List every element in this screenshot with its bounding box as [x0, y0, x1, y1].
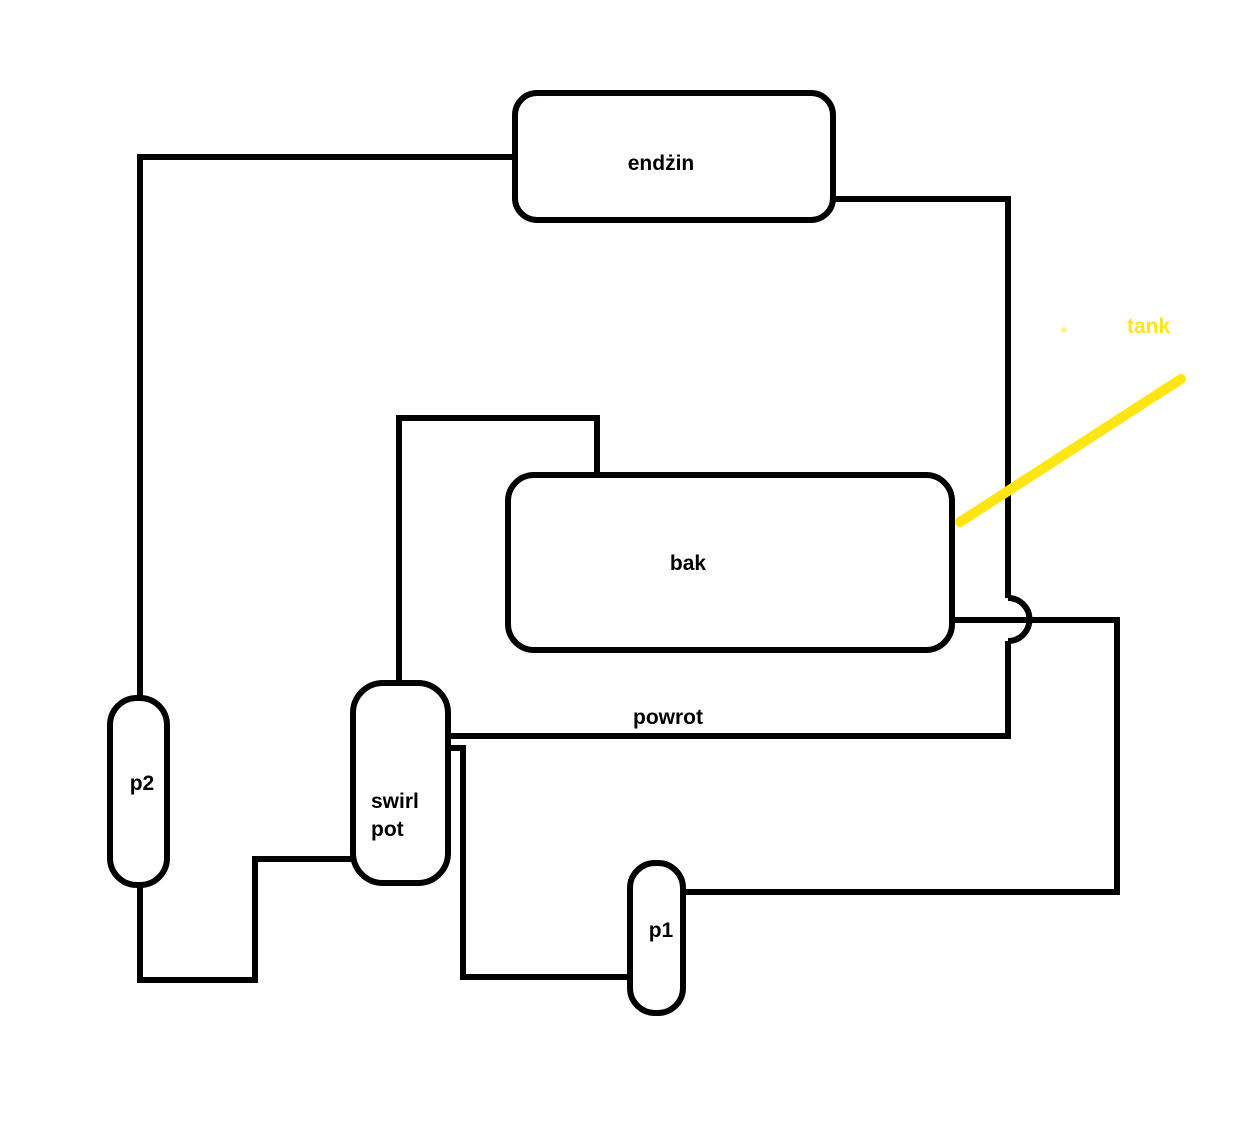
connector-return-to-swirlpot — [448, 641, 1008, 736]
stray-paint-dot — [1061, 327, 1067, 333]
tank-callout-label: tank — [1127, 315, 1171, 338]
connector-pump1-to-swirlpot — [448, 748, 632, 977]
paint-canvas: tank endżin bak swirl pot p2 p1 powrot — [0, 0, 1246, 1133]
connector-bak-to-pump1 — [685, 620, 1117, 892]
swirl-pot-label-line1: swirl — [371, 790, 419, 813]
swirl-pot-label-line2: pot — [371, 818, 404, 841]
tank-callout-pointer-line — [960, 379, 1181, 522]
connector-engine-to-pump2 — [140, 157, 515, 700]
engine-label: endżin — [628, 152, 695, 175]
fuel-tank-box — [508, 475, 952, 650]
fuel-tank-label: bak — [670, 552, 707, 575]
swirl-pot-box — [353, 683, 448, 883]
pump1-label: p1 — [649, 919, 674, 942]
fuel-system-diagram: tank endżin bak swirl pot p2 p1 powrot — [0, 0, 1246, 1133]
return-line-label: powrot — [633, 706, 703, 729]
connector-pump2-to-swirlpot — [140, 859, 355, 980]
pump2-label: p2 — [130, 772, 155, 795]
